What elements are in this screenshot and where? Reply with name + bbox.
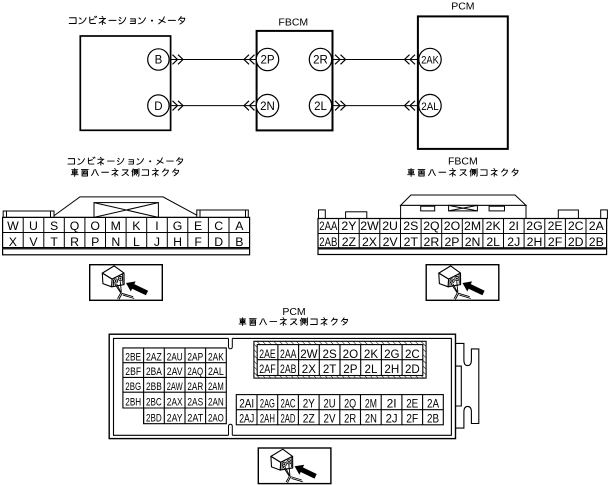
svg-text:FBCM: FBCM — [278, 17, 308, 29]
svg-text:2AB: 2AB — [280, 363, 297, 376]
svg-text:2AU: 2AU — [167, 351, 183, 363]
svg-text:2R: 2R — [313, 55, 328, 67]
svg-text:2AT: 2AT — [187, 412, 203, 424]
svg-text:2R: 2R — [344, 412, 356, 426]
svg-text:F: F — [194, 235, 202, 249]
svg-text:D: D — [154, 101, 162, 113]
svg-text:2AR: 2AR — [187, 381, 203, 393]
svg-text:R: R — [70, 235, 79, 249]
svg-text:2AL: 2AL — [208, 366, 224, 378]
svg-text:2Y: 2Y — [341, 219, 356, 233]
svg-text:2AI: 2AI — [239, 397, 254, 411]
svg-text:H: H — [173, 235, 182, 249]
svg-text:2M: 2M — [365, 397, 377, 411]
svg-text:2U: 2U — [324, 397, 336, 411]
svg-text:2X: 2X — [362, 235, 377, 249]
svg-text:B: B — [235, 235, 243, 249]
svg-text:2BF: 2BF — [125, 366, 141, 378]
svg-text:2W: 2W — [360, 219, 379, 233]
svg-text:2N: 2N — [365, 412, 377, 426]
svg-text:2Q: 2Q — [423, 219, 439, 233]
svg-text:I: I — [155, 219, 158, 233]
svg-text:PCM: PCM — [451, 1, 474, 13]
svg-text:2AO: 2AO — [208, 412, 224, 424]
svg-text:2AX: 2AX — [167, 397, 183, 409]
svg-text:A: A — [235, 219, 244, 233]
svg-text:2AK: 2AK — [208, 351, 224, 363]
svg-text:2AL: 2AL — [421, 101, 439, 113]
svg-text:2O: 2O — [444, 219, 460, 233]
svg-text:W: W — [7, 219, 19, 233]
svg-text:2D: 2D — [405, 363, 420, 376]
svg-text:2Z: 2Z — [303, 412, 315, 426]
svg-text:G: G — [173, 219, 183, 233]
svg-text:2P: 2P — [343, 363, 357, 376]
svg-text:2Z: 2Z — [342, 235, 357, 249]
svg-text:FBCM: FBCM — [448, 156, 478, 168]
svg-text:2T: 2T — [323, 363, 337, 376]
svg-text:2L: 2L — [365, 363, 378, 376]
svg-text:2Y: 2Y — [303, 397, 315, 411]
svg-text:2AA: 2AA — [280, 348, 297, 361]
svg-text:P: P — [91, 235, 99, 249]
svg-text:2AM: 2AM — [208, 381, 224, 393]
svg-text:2AJ: 2AJ — [239, 412, 254, 426]
svg-text:2BC: 2BC — [146, 397, 162, 409]
svg-text:U: U — [29, 219, 38, 233]
svg-text:2Q: 2Q — [344, 397, 356, 411]
svg-text:2S: 2S — [323, 348, 337, 361]
svg-text:2A: 2A — [427, 397, 439, 411]
svg-text:2AH: 2AH — [260, 412, 275, 426]
svg-text:2H: 2H — [527, 235, 543, 249]
svg-text:PCM: PCM — [282, 306, 305, 318]
svg-text:L: L — [133, 235, 140, 249]
svg-text:2G: 2G — [526, 219, 542, 233]
svg-text:2AC: 2AC — [281, 397, 296, 411]
svg-text:2I: 2I — [509, 219, 519, 233]
svg-text:2AA: 2AA — [319, 219, 338, 233]
svg-text:2BG: 2BG — [125, 381, 141, 393]
svg-text:2E: 2E — [406, 397, 418, 411]
svg-text:2D: 2D — [568, 235, 584, 249]
svg-text:2B: 2B — [589, 235, 604, 249]
svg-text:2X: 2X — [302, 363, 316, 376]
svg-text:Q: Q — [70, 219, 80, 233]
svg-text:2L: 2L — [314, 101, 327, 113]
svg-text:X: X — [9, 235, 17, 249]
svg-text:V: V — [29, 235, 38, 249]
svg-text:2AP: 2AP — [187, 351, 203, 363]
svg-text:2AQ: 2AQ — [187, 366, 203, 378]
svg-text:2B: 2B — [427, 412, 439, 426]
svg-text:2N: 2N — [260, 101, 275, 113]
svg-text:2K: 2K — [486, 219, 502, 233]
svg-text:M: M — [111, 219, 121, 233]
svg-text:2V: 2V — [383, 235, 399, 249]
svg-text:2E: 2E — [548, 219, 563, 233]
svg-text:J: J — [154, 235, 160, 249]
svg-text:2K: 2K — [364, 348, 378, 361]
svg-text:2BA: 2BA — [146, 366, 162, 378]
svg-text:T: T — [50, 235, 58, 249]
svg-text:2A: 2A — [589, 219, 605, 233]
svg-text:2G: 2G — [384, 348, 399, 361]
svg-text:2R: 2R — [424, 235, 440, 249]
svg-text:2L: 2L — [486, 235, 500, 249]
svg-text:2T: 2T — [404, 235, 419, 249]
svg-text:2AB: 2AB — [319, 235, 337, 249]
svg-text:O: O — [90, 219, 100, 233]
svg-text:2J: 2J — [386, 412, 398, 426]
svg-text:2BE: 2BE — [125, 351, 141, 363]
svg-text:2AY: 2AY — [167, 412, 183, 424]
svg-text:2J: 2J — [507, 235, 520, 249]
svg-text:2C: 2C — [405, 348, 420, 361]
svg-text:2N: 2N — [465, 235, 481, 249]
svg-text:2C: 2C — [568, 219, 584, 233]
svg-text:2S: 2S — [403, 219, 418, 233]
svg-text:2AD: 2AD — [281, 412, 296, 426]
svg-text:2M: 2M — [464, 219, 481, 233]
svg-text:2H: 2H — [384, 363, 399, 376]
svg-text:2P: 2P — [444, 235, 459, 249]
svg-text:2AV: 2AV — [167, 366, 183, 378]
svg-text:B: B — [155, 55, 163, 67]
svg-text:2P: 2P — [260, 55, 274, 67]
svg-text:2F: 2F — [548, 235, 563, 249]
svg-text:2W: 2W — [300, 348, 317, 361]
svg-text:N: N — [111, 235, 120, 249]
svg-text:2O: 2O — [343, 348, 358, 361]
svg-text:K: K — [132, 219, 141, 233]
svg-text:2AW: 2AW — [167, 381, 183, 393]
svg-text:2V: 2V — [324, 412, 336, 426]
svg-text:2AZ: 2AZ — [146, 351, 162, 363]
svg-text:2U: 2U — [382, 219, 398, 233]
svg-text:2BD: 2BD — [146, 412, 162, 424]
svg-text:C: C — [214, 219, 223, 233]
svg-text:2AG: 2AG — [260, 397, 275, 411]
svg-text:2BB: 2BB — [146, 381, 162, 393]
svg-text:D: D — [214, 235, 223, 249]
svg-text:2AN: 2AN — [208, 397, 224, 409]
svg-text:2BH: 2BH — [125, 397, 141, 409]
svg-text:S: S — [50, 219, 58, 233]
svg-text:2AF: 2AF — [259, 363, 275, 376]
svg-text:2I: 2I — [387, 397, 397, 411]
svg-text:E: E — [194, 219, 202, 233]
svg-text:2AK: 2AK — [421, 55, 439, 67]
svg-text:2AE: 2AE — [259, 348, 276, 361]
svg-text:2F: 2F — [406, 412, 418, 426]
svg-text:2AS: 2AS — [187, 397, 203, 409]
